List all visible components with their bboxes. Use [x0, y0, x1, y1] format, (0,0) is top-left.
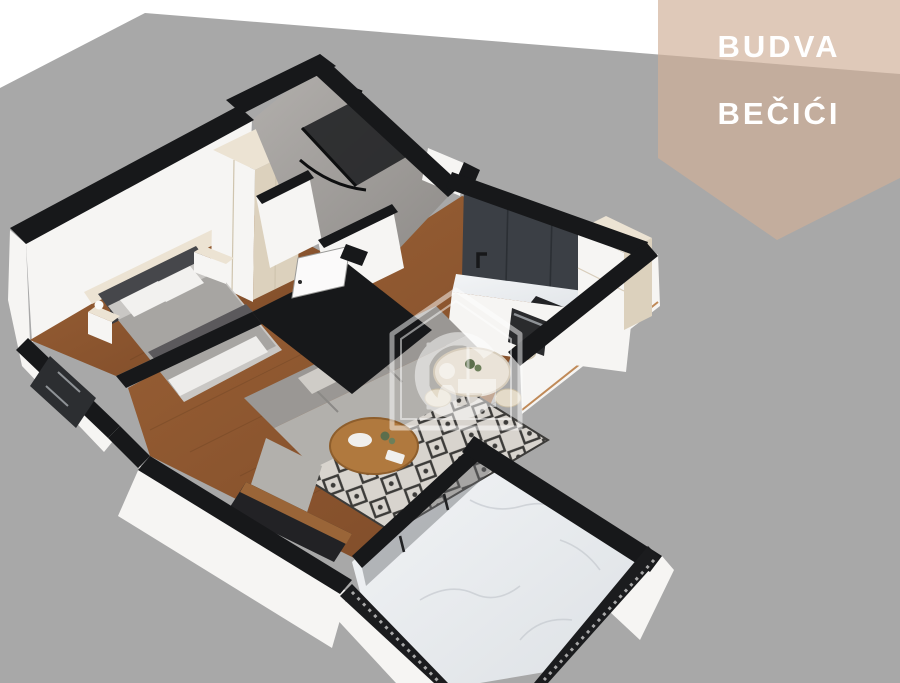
decor-bowl	[348, 433, 372, 447]
banner-line1: BUDVA	[718, 29, 841, 64]
floorplan-screenshot: BUDVA BEČIĆI	[0, 0, 900, 683]
floorplan-render: BUDVA BEČIĆI	[0, 0, 900, 683]
door-handle	[298, 280, 302, 284]
table-lamp	[95, 301, 104, 310]
dining-chair	[495, 389, 521, 407]
plant	[381, 432, 390, 441]
logo-keyhole	[439, 363, 455, 379]
logo-g-stem	[482, 379, 496, 407]
banner-line2: BEČIĆI	[717, 95, 840, 131]
